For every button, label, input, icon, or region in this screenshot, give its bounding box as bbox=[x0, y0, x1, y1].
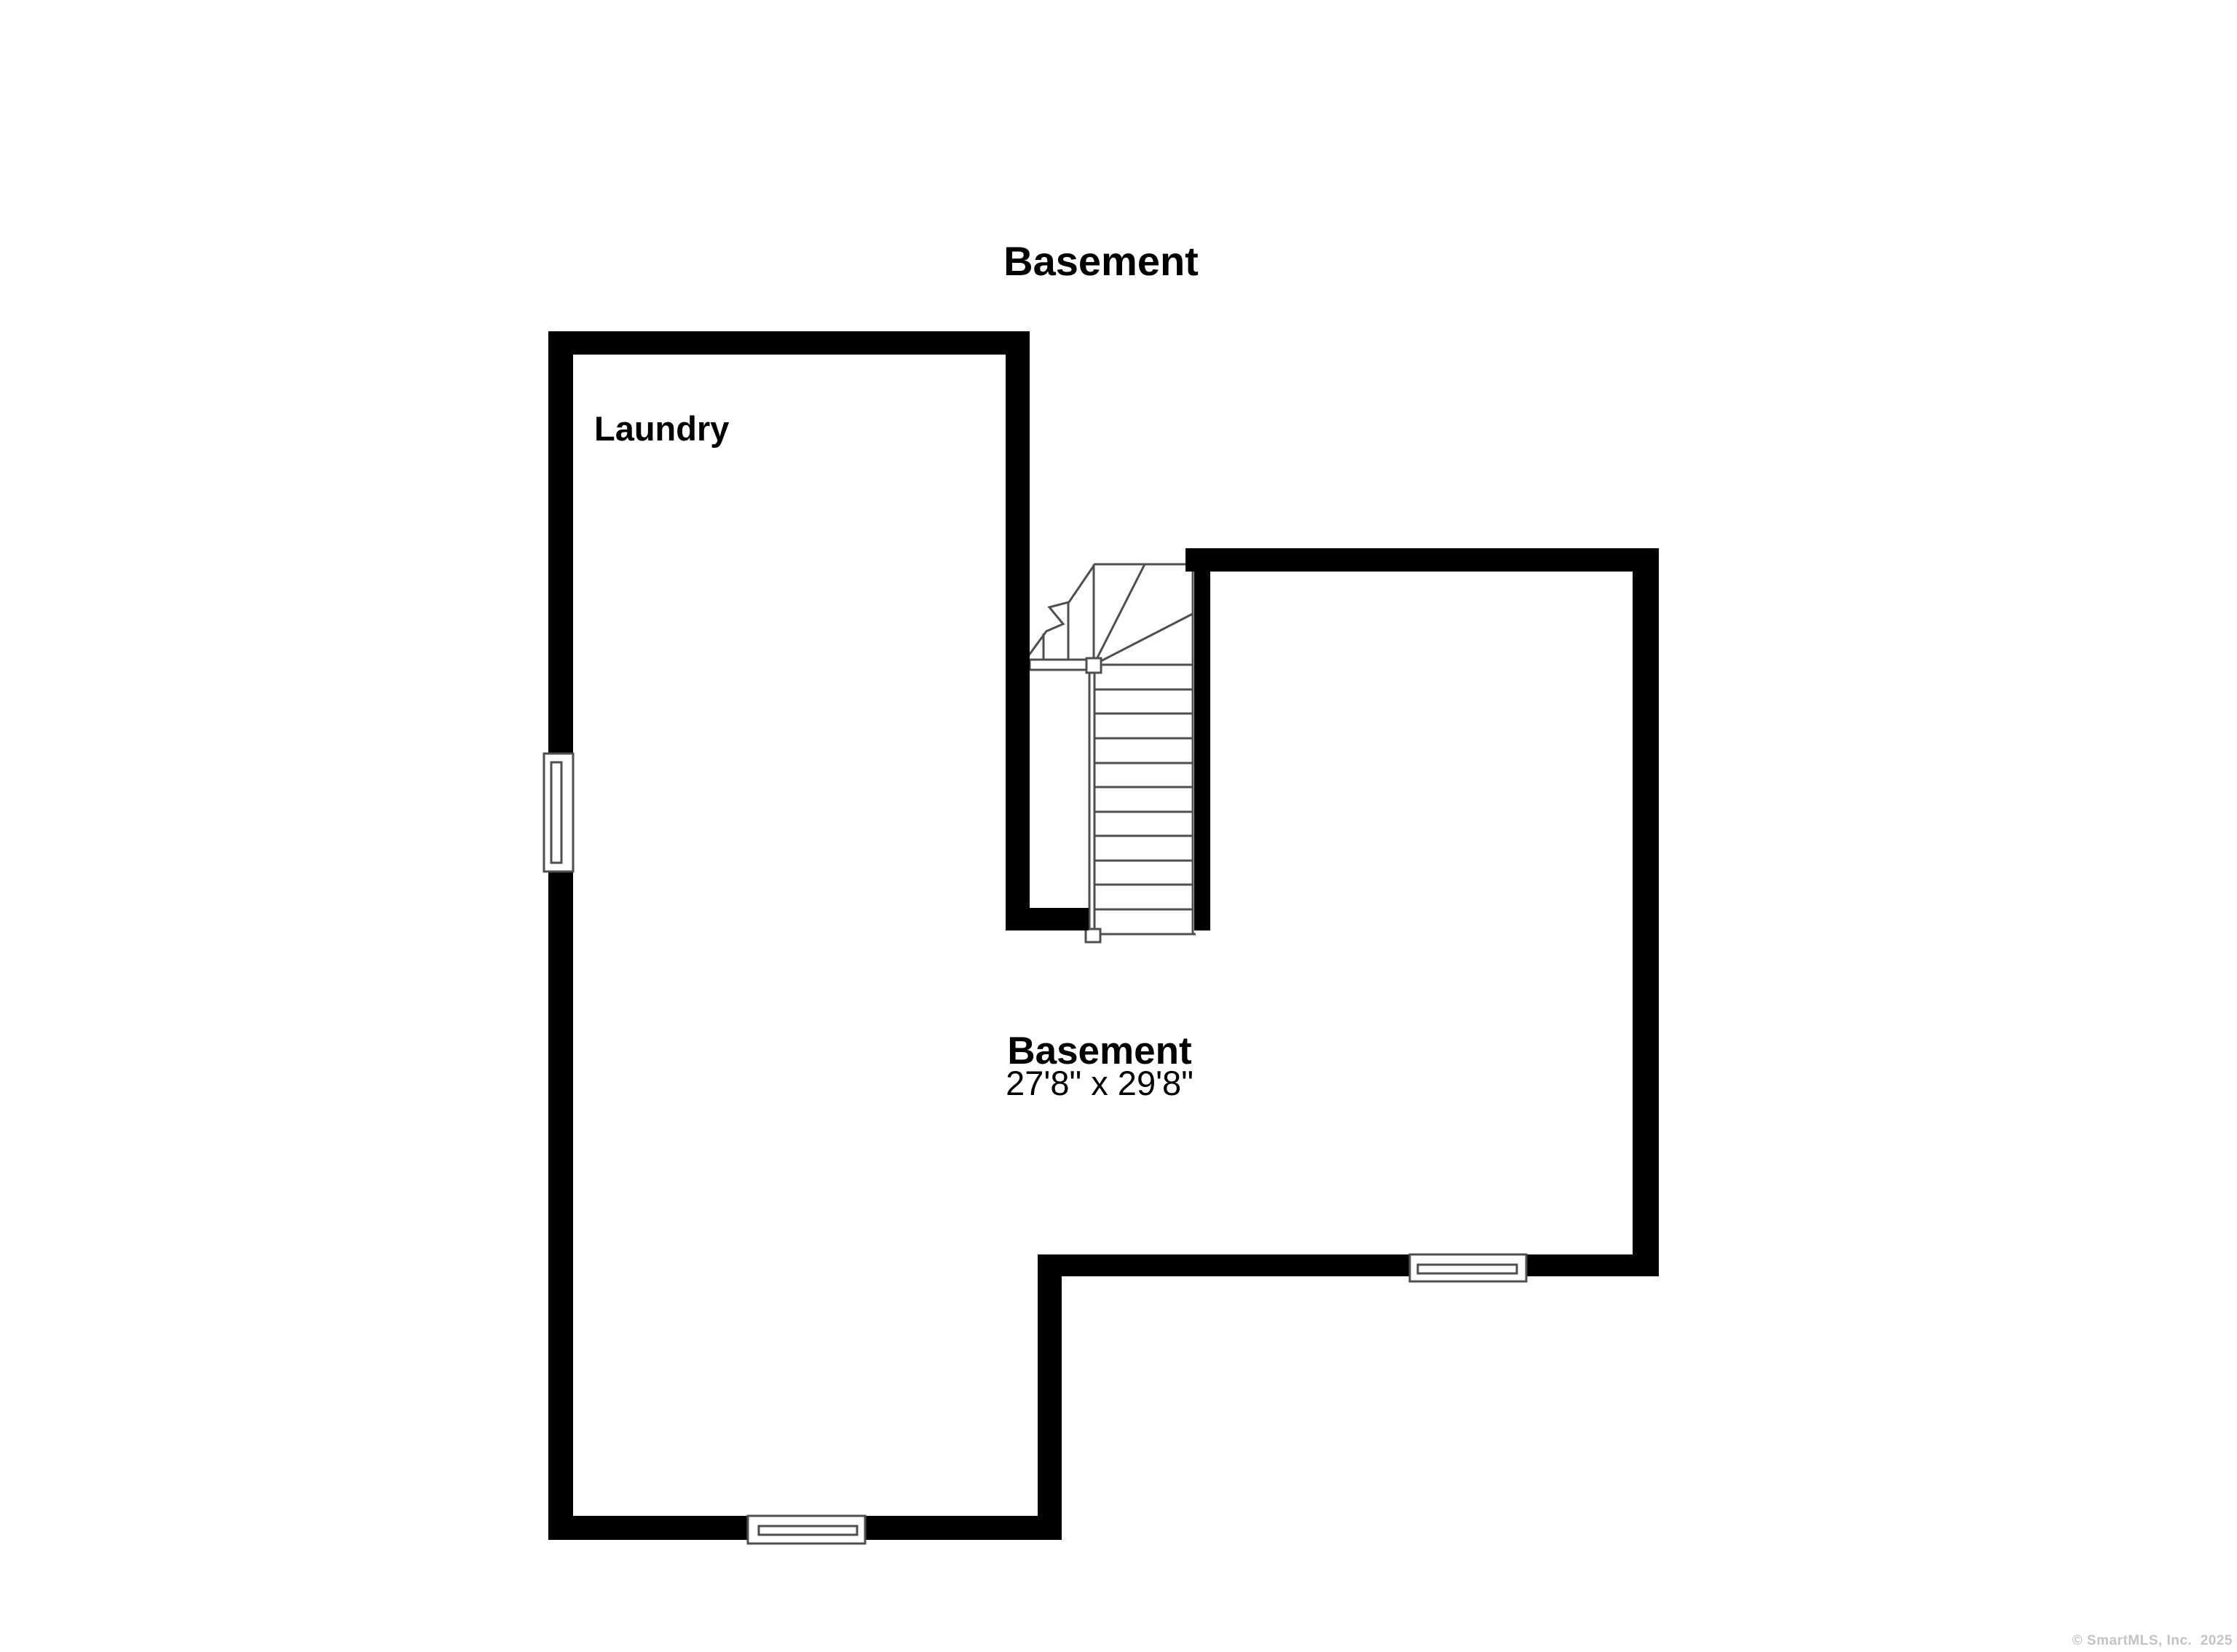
wall-basement-right bbox=[1633, 548, 1659, 1276]
wall-left-lower bbox=[548, 872, 573, 1540]
wall-basement-top bbox=[1185, 548, 1659, 572]
wall-laundry-top bbox=[548, 331, 1030, 355]
wall-laundry-right bbox=[1006, 331, 1030, 930]
stair-break-line bbox=[1025, 566, 1094, 661]
window-pane bbox=[759, 1526, 857, 1535]
wall-left-upper bbox=[548, 331, 573, 754]
winder-tread-line bbox=[1094, 614, 1193, 665]
window-bottom-wall bbox=[748, 1516, 865, 1544]
stair-newel-post-top bbox=[1086, 658, 1101, 673]
laundry-room-label: Laundry bbox=[594, 409, 729, 448]
floor-plan-drawing: Basement Laundry Basement 27'8" x 29'8" bbox=[0, 0, 2237, 1652]
copyright-notice: © SmartMLS, Inc. 2025 bbox=[2072, 1633, 2233, 1649]
window-left-wall bbox=[544, 754, 573, 872]
wall-basement-left bbox=[1194, 572, 1210, 930]
wall-basement-bottom-right-seg bbox=[1526, 1254, 1659, 1276]
stair-newel-post-bottom bbox=[1086, 929, 1100, 942]
stair-landing-rail bbox=[1030, 660, 1086, 670]
window-pane bbox=[1418, 1265, 1517, 1273]
wall-bottom-right-seg bbox=[865, 1516, 1062, 1540]
wall-stair-stub bbox=[1006, 908, 1089, 930]
wall-step-right bbox=[1038, 1254, 1062, 1540]
stair-rail bbox=[1089, 670, 1094, 930]
winder-tread-line bbox=[1094, 564, 1145, 665]
wall-basement-bottom-left-seg bbox=[1038, 1254, 1410, 1276]
windows bbox=[544, 754, 1526, 1544]
staircase bbox=[1025, 564, 1196, 942]
window-basement-bottom-wall bbox=[1410, 1254, 1526, 1281]
floor-plan-page: Basement Laundry Basement 27'8" x 29'8" … bbox=[0, 0, 2237, 1652]
wall-bottom-left-seg bbox=[548, 1516, 748, 1540]
window-pane bbox=[551, 762, 561, 863]
page-title: Basement bbox=[1003, 238, 1199, 284]
walls bbox=[548, 331, 1659, 1540]
basement-room-dimensions: 27'8" x 29'8" bbox=[1006, 1064, 1194, 1102]
